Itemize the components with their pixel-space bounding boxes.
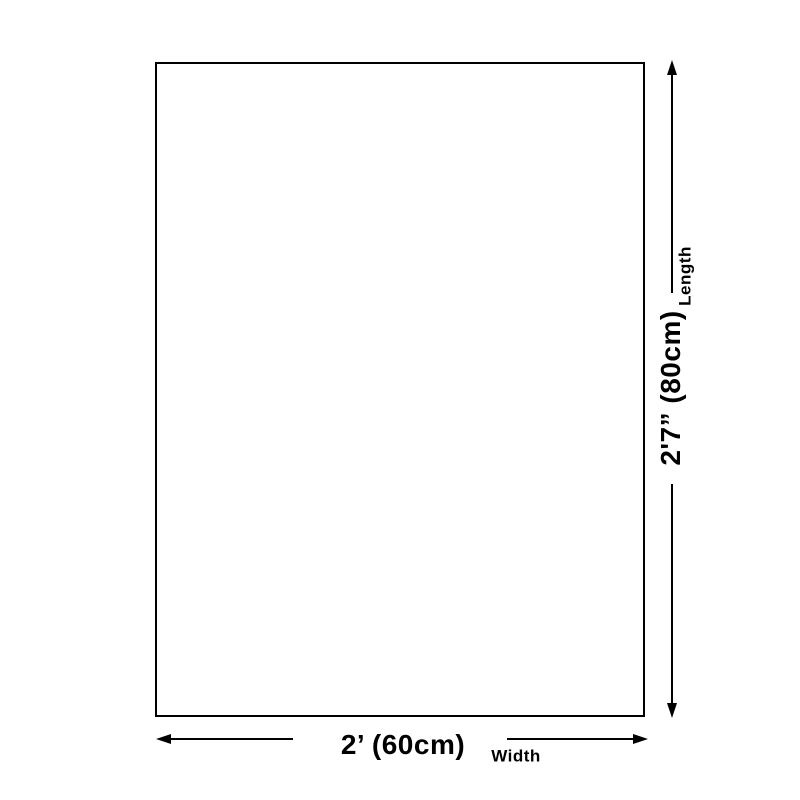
- length-value-label: 2'7” (80cm): [657, 310, 685, 465]
- width-arrow-left-icon: [156, 732, 293, 746]
- length-arrow-down-icon: [665, 484, 679, 718]
- width-arrow-right-icon: [507, 732, 648, 746]
- product-outline-box: [155, 62, 645, 717]
- width-axis-label: Width: [491, 748, 541, 765]
- width-value-label: 2’ (60cm): [341, 731, 465, 759]
- length-axis-label: Length: [677, 246, 694, 306]
- dimension-diagram: Length 2'7” (80cm) 2’ (60cm) Width: [0, 0, 800, 800]
